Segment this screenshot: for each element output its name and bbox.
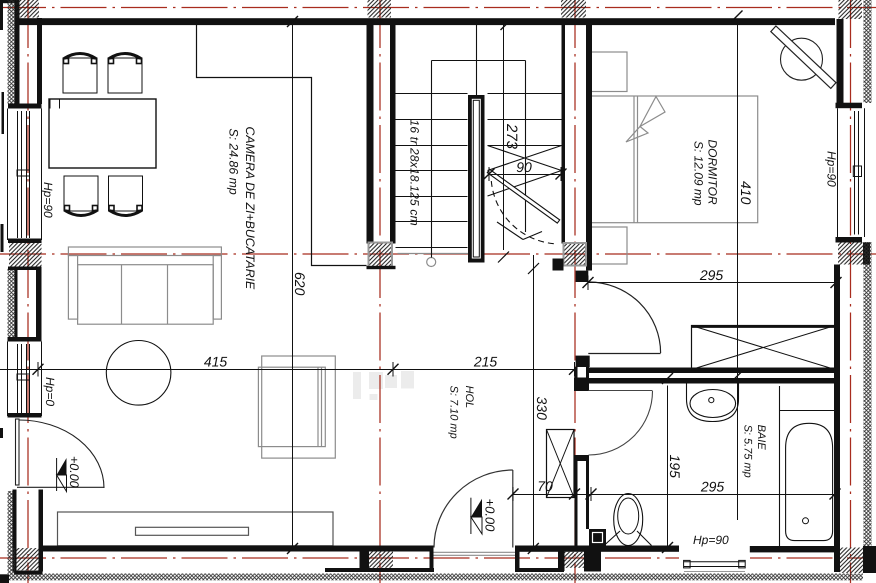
svg-text:BAIE: BAIE xyxy=(755,425,767,451)
svg-text:DORMITOR: DORMITOR xyxy=(706,140,720,205)
svg-text:295: 295 xyxy=(700,479,725,495)
svg-text:273: 273 xyxy=(503,123,520,150)
svg-text:Hp=90: Hp=90 xyxy=(41,182,55,218)
svg-text:+0.00: +0.00 xyxy=(483,499,498,533)
svg-text:S: 5.75 mp: S: 5.75 mp xyxy=(742,425,754,478)
svg-text:90: 90 xyxy=(516,159,532,175)
svg-text:S: 7.10 mp: S: 7.10 mp xyxy=(448,386,460,439)
svg-text:620: 620 xyxy=(292,272,308,296)
svg-text:+0.00: +0.00 xyxy=(67,456,81,488)
svg-text:16 tr 28x18.125 cm: 16 tr 28x18.125 cm xyxy=(408,120,422,226)
svg-text:195: 195 xyxy=(667,455,683,479)
svg-text:Hp=90: Hp=90 xyxy=(693,533,729,547)
svg-text:70: 70 xyxy=(537,478,553,494)
svg-text:S: 12.09 mp: S: 12.09 mp xyxy=(692,141,706,206)
svg-text:295: 295 xyxy=(699,267,724,283)
svg-text:Hp=0: Hp=0 xyxy=(43,377,57,406)
svg-text:415: 415 xyxy=(204,354,228,370)
svg-text:S: 24.86 mp: S: 24.86 mp xyxy=(227,128,241,194)
svg-text:410: 410 xyxy=(738,181,754,205)
svg-text:Hp=90: Hp=90 xyxy=(825,151,839,187)
svg-text:HOL: HOL xyxy=(463,386,475,409)
svg-text:330: 330 xyxy=(534,397,550,421)
svg-text:CAMERA DE ZI+BUCATARIE: CAMERA DE ZI+BUCATARIE xyxy=(243,127,257,291)
svg-text:215: 215 xyxy=(473,354,498,370)
